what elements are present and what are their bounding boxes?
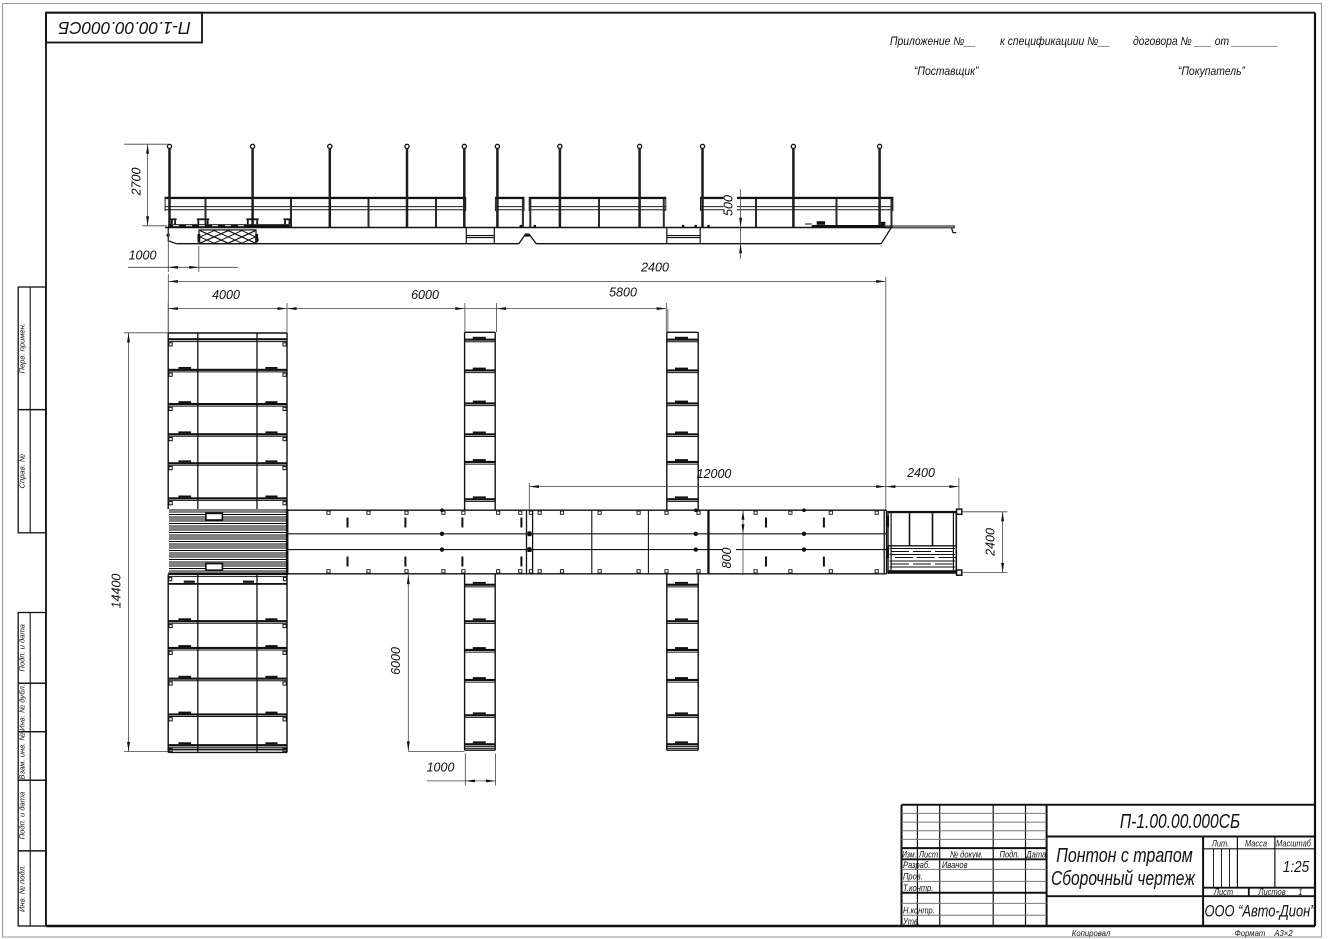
- svg-text:2400: 2400: [640, 261, 669, 275]
- svg-text:Масштаб: Масштаб: [1276, 839, 1311, 849]
- svg-text:14400: 14400: [110, 574, 124, 609]
- svg-text:Понтон с трапом: Понтон с трапом: [1056, 845, 1193, 867]
- svg-text:Утв.: Утв.: [902, 916, 920, 927]
- svg-text:Масса: Масса: [1245, 839, 1268, 849]
- svg-text:Справ. №: Справ. №: [18, 454, 27, 489]
- svg-text:А3×2: А3×2: [1273, 928, 1293, 937]
- svg-text:к спецификациии №__: к спецификациии №__: [1000, 36, 1110, 49]
- svg-text:Перв. примен.: Перв. примен.: [18, 323, 27, 373]
- svg-text:договора № ___ от ________: договора № ___ от ________: [1133, 36, 1278, 49]
- svg-text:Подп.: Подп.: [1000, 848, 1020, 859]
- svg-text:ООО “Авто-Дион”: ООО “Авто-Дион”: [1204, 902, 1315, 921]
- svg-text:Взам. инв. №: Взам. инв. №: [18, 732, 27, 779]
- svg-text:Лист: Лист: [1213, 887, 1233, 897]
- svg-text:2700: 2700: [130, 168, 144, 197]
- svg-text:Подп. и дата: Подп. и дата: [18, 624, 27, 672]
- svg-text:П-1.00.00.000СБ: П-1.00.00.000СБ: [1120, 810, 1241, 832]
- svg-text:Т.контр.: Т.контр.: [903, 882, 933, 893]
- svg-text:1:25: 1:25: [1283, 859, 1310, 876]
- svg-text:Лист: Лист: [918, 848, 938, 859]
- svg-text:П-1.00.00.000СБ: П-1.00.00.000СБ: [58, 18, 191, 38]
- svg-text:6000: 6000: [389, 647, 403, 675]
- svg-text:Формат: Формат: [1235, 928, 1266, 937]
- svg-text:Иванов: Иванов: [942, 859, 968, 870]
- svg-text:1000: 1000: [427, 761, 455, 775]
- svg-text:12000: 12000: [697, 467, 732, 481]
- svg-text:1: 1: [1298, 887, 1302, 897]
- svg-text:5800: 5800: [609, 286, 637, 300]
- svg-text:1000: 1000: [129, 249, 157, 263]
- svg-text:“Покупатель”: “Покупатель”: [1178, 66, 1246, 79]
- svg-text:2400: 2400: [906, 466, 935, 480]
- svg-text:Лит.: Лит.: [1211, 839, 1229, 849]
- svg-text:Сборочный чертеж: Сборочный чертеж: [1051, 867, 1196, 889]
- svg-text:6000: 6000: [411, 288, 439, 302]
- svg-text:Подп. и дата: Подп. и дата: [18, 792, 27, 840]
- svg-text:4000: 4000: [212, 288, 240, 302]
- svg-text:500: 500: [722, 195, 736, 216]
- svg-text:Н.контр.: Н.контр.: [903, 904, 935, 915]
- svg-text:Разраб.: Разраб.: [903, 859, 930, 870]
- svg-text:Приложение №__: Приложение №__: [890, 36, 976, 49]
- svg-text:800: 800: [720, 548, 734, 569]
- svg-text:Инв. № дубл.: Инв. № дубл.: [18, 684, 27, 731]
- svg-text:2400: 2400: [984, 528, 998, 557]
- svg-text:Инв. № подл.: Инв. № подл.: [18, 865, 27, 912]
- svg-text:Пров.: Пров.: [903, 870, 923, 881]
- svg-text:№ докум.: № докум.: [950, 848, 983, 859]
- svg-text:Копировал: Копировал: [1072, 928, 1111, 937]
- svg-text:Дата: Дата: [1026, 848, 1047, 859]
- svg-text:Листов: Листов: [1257, 887, 1286, 897]
- svg-text:“Поставщик”: “Поставщик”: [914, 66, 980, 79]
- svg-text:Изм.: Изм.: [902, 849, 916, 859]
